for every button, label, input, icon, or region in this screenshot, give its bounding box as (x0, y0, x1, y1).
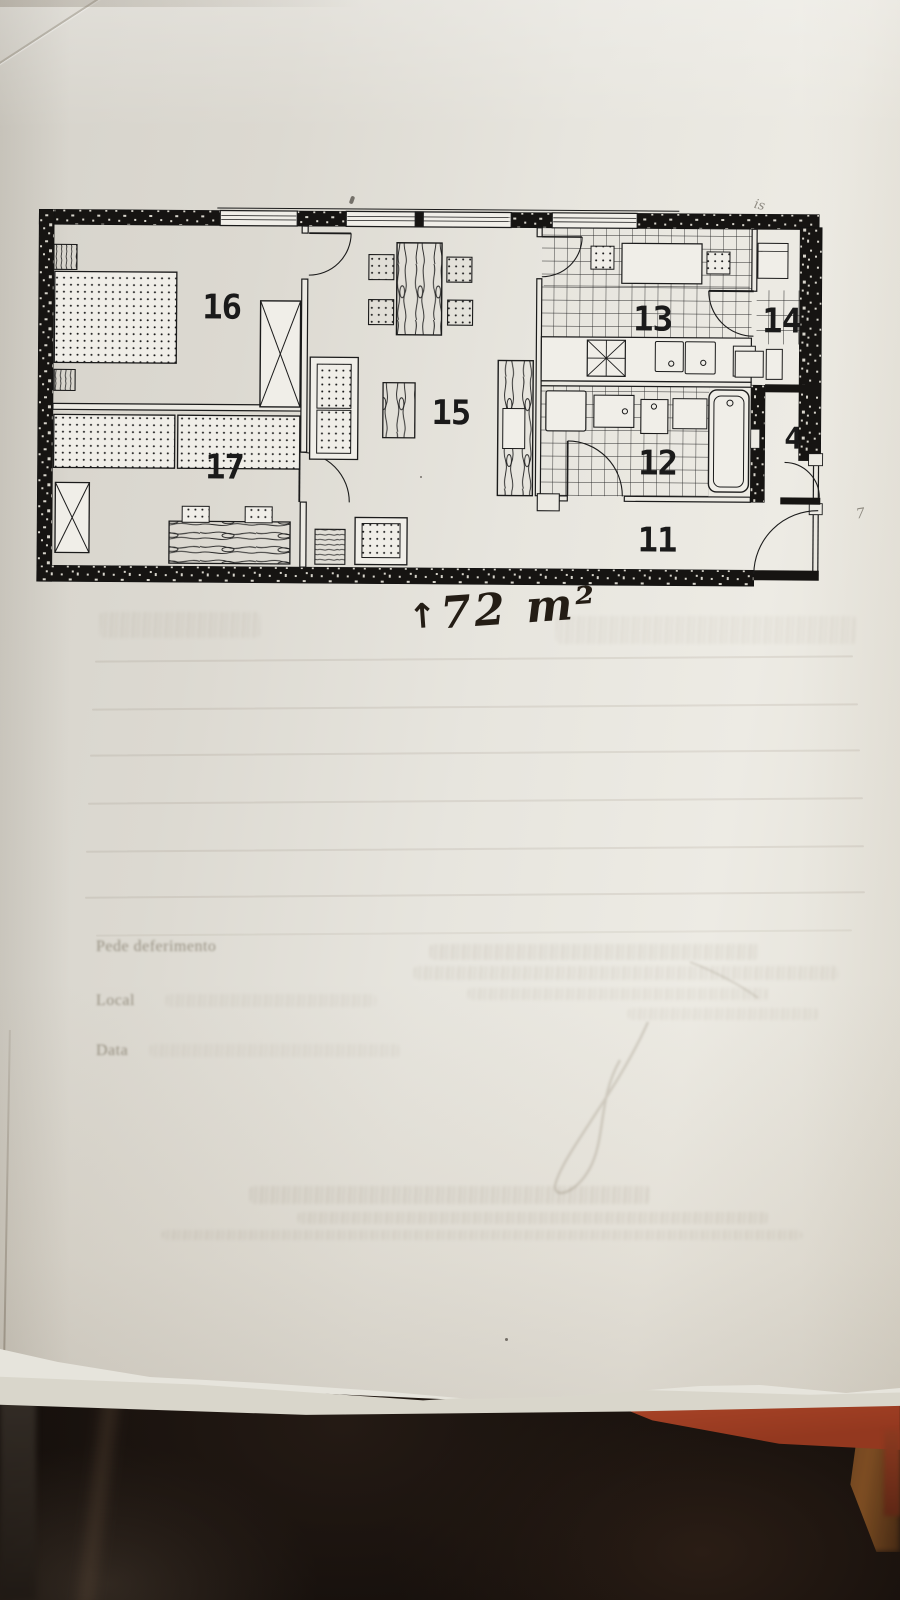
floor-plan: 16 17 15 13 14 12 11 4 (32, 205, 837, 591)
desk-chair-icon (245, 507, 272, 523)
washing-machine-icon (546, 391, 586, 431)
nightstand-icon (54, 369, 75, 390)
under-sheet-edge-line (3, 1030, 11, 1360)
sink-icon (685, 342, 715, 374)
kitchen-counter-row (541, 337, 751, 382)
wall-niche (751, 429, 760, 448)
pencil-mark-right: 7 (855, 505, 866, 522)
room17-furniture (53, 414, 300, 564)
bath-shelf-icon (673, 399, 707, 429)
room15-label: 15 (431, 393, 470, 433)
window-room15 (346, 211, 511, 227)
dining-chair-icon (369, 300, 394, 325)
sink-icon (655, 342, 683, 372)
room16-furniture (53, 244, 301, 407)
room4-top-wall (765, 384, 821, 392)
wall-stub (537, 494, 559, 511)
door-room16 (309, 233, 351, 275)
room12-label: 12 (638, 443, 677, 483)
room17-label: 17 (205, 447, 244, 487)
ink-speck (505, 1338, 508, 1341)
door-entry (754, 510, 819, 580)
room14-shelf-icon (758, 243, 788, 278)
room16-label: 16 (202, 287, 241, 327)
ghost-date-label: Data (96, 1042, 128, 1060)
dining-chair-icon (447, 257, 472, 282)
desk-chair-icon (182, 506, 209, 522)
kitchen-stool-icon (707, 252, 730, 274)
kitchen-counter-icon (622, 243, 702, 284)
nightstand-icon (54, 244, 77, 269)
window-room16 (220, 211, 297, 227)
north-arrow-icon: ↑ (407, 596, 438, 638)
side-table-icon (315, 529, 345, 564)
washbasin-icon (641, 399, 668, 433)
wardrobe-icon (55, 482, 89, 552)
double-bed-icon (54, 271, 177, 363)
pen-tick (349, 196, 355, 205)
counter-box-icon (766, 349, 782, 379)
ghost-plea-text: Pede deferimento (96, 938, 216, 956)
counter-box-icon (735, 351, 763, 377)
wall-junction-notch-2 (809, 504, 822, 515)
windows (220, 211, 637, 229)
room15-furniture (309, 242, 534, 566)
document-paper: Pede deferimento Local Data is 7 (0, 0, 900, 1400)
room4-label: 4 (784, 421, 801, 456)
wall-junction-notch (809, 454, 823, 466)
window-kitchen (552, 213, 637, 229)
dining-chair-icon (448, 300, 473, 325)
sofa-icon (310, 357, 359, 459)
kitchen-stool-icon (591, 246, 614, 269)
room11-label: 11 (637, 520, 676, 560)
stove-icon (587, 340, 625, 376)
single-bed-icon (54, 414, 175, 468)
paper-top-edge (0, 0, 360, 7)
room13-label: 13 (633, 299, 672, 339)
dining-chair-icon (369, 255, 394, 280)
coffee-table-icon (383, 383, 415, 438)
room14-label: 14 (762, 301, 801, 341)
armchair-icon (355, 517, 407, 564)
sideboard-icon (497, 360, 533, 495)
bathtub-icon (708, 390, 749, 492)
door-room4 (780, 462, 820, 504)
floor-plan-drawing: 16 17 15 13 14 12 11 4 (32, 205, 837, 591)
orange-object-edge (884, 1430, 900, 1516)
wardrobe-icon (260, 301, 301, 407)
desk-icon (169, 521, 290, 564)
paper-crease (0, 0, 111, 68)
washbasin-icon (594, 395, 634, 427)
dining-table-icon (396, 243, 442, 335)
ghost-place-label: Local (96, 992, 135, 1010)
fabric-highlight (0, 1398, 36, 1600)
photo-of-document: Pede deferimento Local Data is 7 (0, 0, 900, 1600)
